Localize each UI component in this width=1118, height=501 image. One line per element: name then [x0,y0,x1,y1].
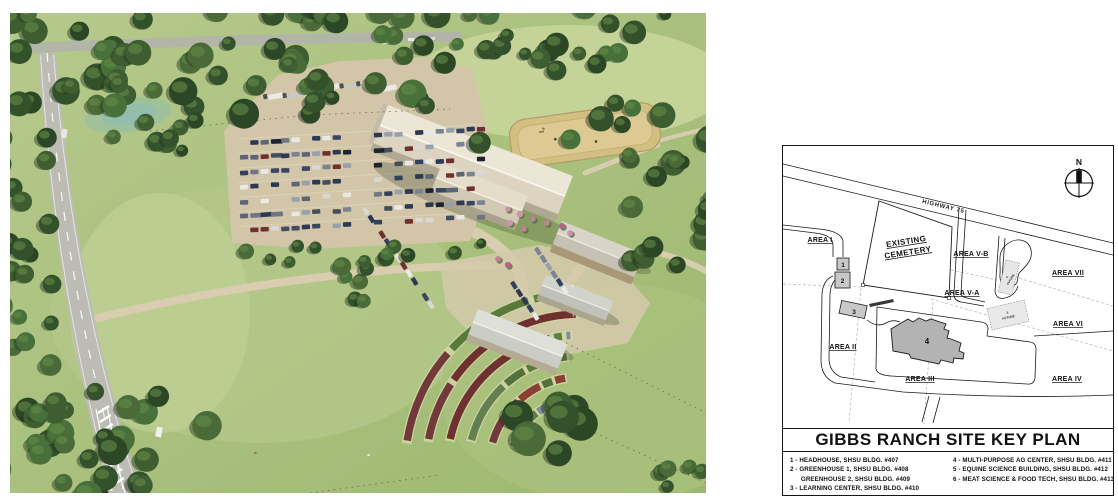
legend-entry: 2 - GREENHOUSE 1, SHSU BLDG. #408 [790,465,919,474]
building-marker-1: 1 [841,262,845,269]
site-key-plan: 6 FUTURE 5 FUTURE 1 2 3 4 HIGHWAY 75 [782,145,1114,496]
compass-north-label: N [1076,157,1082,167]
legend-entry: 1 - HEADHOUSE, SHSU BLDG. #407 [790,456,919,465]
area-label-vii: AREA VII [1052,270,1084,277]
plan-map: 6 FUTURE 5 FUTURE 1 2 3 4 HIGHWAY 75 [783,146,1113,428]
legend-left-column: 1 - HEADHOUSE, SHSU BLDG. #4072 - GREENH… [790,456,919,494]
building-marker-3: 3 [852,309,856,316]
parcel-corner [862,284,865,287]
legend-entry: 3 - LEARNING CENTER, SHSU BLDG. #410 [790,484,919,493]
area-label-iv: AREA IV [1052,376,1082,383]
legend-entry: 5 - EQUINE SCIENCE BUILDING, SHSU BLDG. … [953,465,1114,474]
area-label-vi: AREA VI [1053,321,1083,328]
area-label-ii: AREA II [829,344,856,351]
aerial-rendering-photo [10,13,706,493]
area-label-v-a: AREA V-A [944,290,979,297]
area-label-iii: AREA III [905,376,934,383]
legend-right-column: 4 - MULTI-PURPOSE AG CENTER, SHSU BLDG. … [953,456,1114,484]
area-label-i: AREA I [808,237,833,244]
building-marker-4: 4 [925,337,930,346]
legend-entry: GREENHOUSE 2, SHSU BLDG. #409 [790,475,919,484]
page: 6 FUTURE 5 FUTURE 1 2 3 4 HIGHWAY 75 [0,0,1118,501]
legend-entry: 4 - MULTI-PURPOSE AG CENTER, SHSU BLDG. … [953,456,1114,465]
plan-legend: 1 - HEADHOUSE, SHSU BLDG. #4072 - GREENH… [783,452,1113,495]
area-label-v-b: AREA V-B [953,251,988,258]
building-marker-2: 2 [841,278,845,285]
aerial-rendering-graphic [10,13,706,493]
plan-title: GIBBS RANCH SITE KEY PLAN [783,428,1113,452]
legend-entry: 6 - MEAT SCIENCE & FOOD TECH, SHSU BLDG.… [953,475,1114,484]
